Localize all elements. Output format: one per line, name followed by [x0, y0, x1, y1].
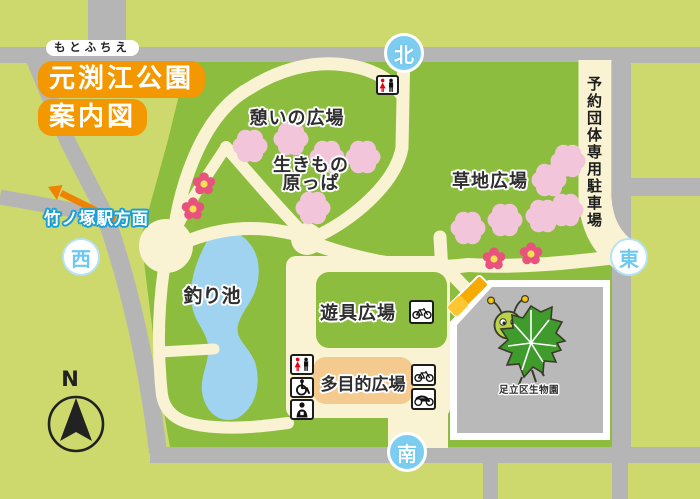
fishing-pond-label: 釣り池 [183, 281, 240, 308]
map-subtitle: 案内図 [38, 99, 147, 136]
bio-garden-label: 足立区生物園 [499, 382, 559, 396]
road-bottom-stub-2 [612, 463, 628, 499]
reserved-parking-label: 予約団体専用駐車場 [586, 76, 601, 229]
bicycle-glyph [412, 305, 432, 319]
bicycle-icon [409, 300, 434, 324]
gate-west: 西 [62, 238, 100, 276]
park-name-furigana: もとふちえ [46, 40, 139, 56]
toilet-glyph [293, 357, 312, 372]
bicycle-glyph [414, 368, 434, 382]
park-name-title: 元渕江公園 [38, 61, 205, 98]
path-pond-deck [160, 349, 214, 352]
creature-meadow-line2: 原っぱ [273, 175, 349, 193]
grass-plaza-label: 草地広場 [452, 167, 528, 193]
toilet-glyph [378, 78, 397, 93]
motorcycle-glyph [414, 392, 434, 406]
wheelchair-glyph [294, 379, 311, 396]
gate-south: 南 [387, 432, 427, 472]
road-right-stub [631, 178, 700, 196]
toilet-icon [290, 354, 314, 375]
park-guide-map: もとふちえ 元渕江公園 案内図 竹ノ塚駅方面 北 南 東 西 憩いの広場 生きも… [0, 0, 700, 499]
gate-east: 東 [610, 238, 648, 276]
multipurpose-plaza-label: 多目的広場 [321, 370, 406, 395]
road-bottom-stub-1 [483, 463, 498, 499]
toilet-icon [376, 75, 399, 95]
bicycle-icon [411, 364, 436, 386]
ostomate-icon [290, 399, 314, 420]
station-direction-label: 竹ノ塚駅方面 [44, 205, 149, 229]
motorcycle-icon [411, 388, 436, 410]
rest-plaza-label: 憩いの広場 [250, 104, 345, 130]
creature-meadow-label: 生きもの 原っぱ [273, 157, 349, 193]
path-rotary [291, 223, 323, 255]
compass-north-letter: N [61, 367, 79, 391]
gate-north: 北 [384, 33, 424, 73]
ostomate-glyph [294, 402, 310, 418]
wheelchair-icon [290, 377, 314, 398]
playground-plaza-label: 遊具広場 [320, 299, 396, 325]
